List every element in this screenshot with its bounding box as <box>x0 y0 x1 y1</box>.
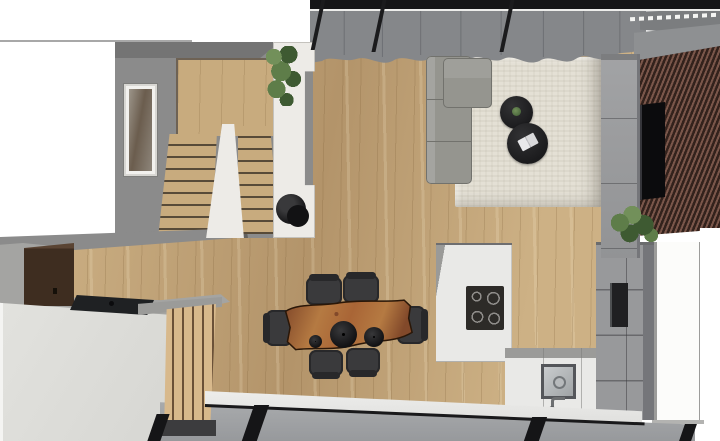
wood-slat-screen <box>164 304 216 436</box>
hanging-plant[interactable] <box>260 46 306 106</box>
pendant-lamp-small[interactable] <box>309 335 322 348</box>
dark-wall-cabinet[interactable] <box>24 243 74 306</box>
tall-appliance-wall[interactable] <box>596 242 654 420</box>
slat-screen-base <box>162 420 216 436</box>
built-in-oven[interactable] <box>610 283 628 327</box>
white-counter-block <box>0 300 180 441</box>
kitchen-sink[interactable] <box>541 364 576 399</box>
exterior-wall-line-left <box>0 40 192 42</box>
floorplan-viewport[interactable] <box>0 0 720 441</box>
hallway-wall-face <box>115 42 280 58</box>
open-book <box>517 132 539 151</box>
white-door[interactable] <box>654 242 702 424</box>
potted-plant[interactable] <box>608 202 662 248</box>
wall-art[interactable] <box>124 84 157 176</box>
black-round-stool[interactable] <box>276 194 306 224</box>
coffee-table-large[interactable] <box>507 123 548 164</box>
induction-cooktop[interactable] <box>466 286 504 330</box>
exterior-void-top-left <box>0 0 120 238</box>
pendant-lamp-large[interactable] <box>330 321 357 348</box>
tv-screen[interactable] <box>640 102 665 200</box>
sofa-chaise[interactable] <box>443 58 492 108</box>
exterior-strip-top <box>118 0 312 42</box>
glazing-frame-top <box>310 0 720 11</box>
exterior-strip-right <box>700 228 720 441</box>
pendant-lamp-medium[interactable] <box>364 327 384 347</box>
